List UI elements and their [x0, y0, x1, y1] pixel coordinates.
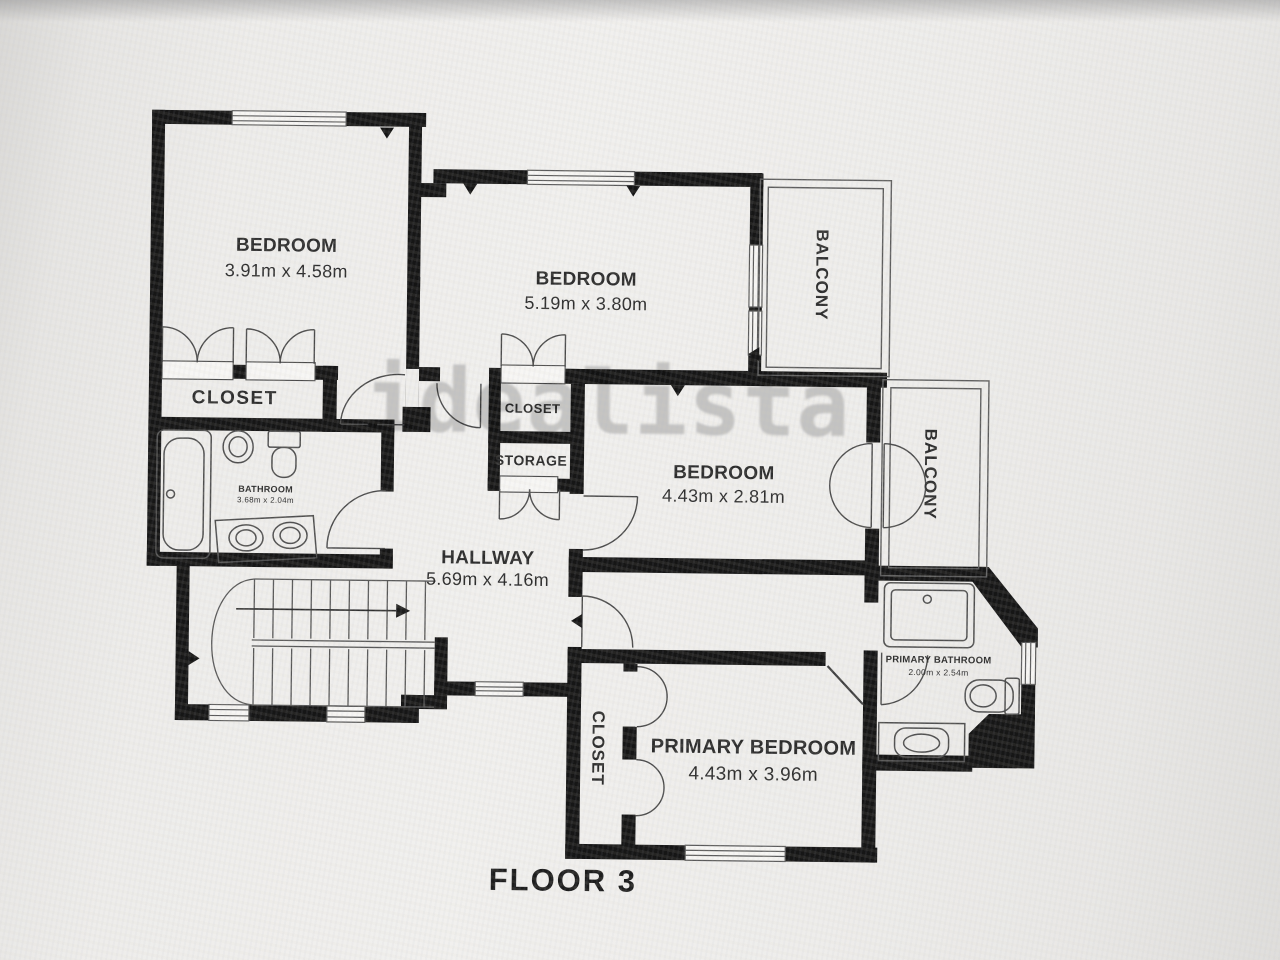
stairs-direction-arrow: [236, 602, 410, 618]
bathtub: [156, 430, 212, 559]
room-label-bedroom-middle-right: BEDROOM: [673, 462, 775, 485]
toilet: [223, 431, 253, 463]
room-dims-bedroom-top-middle: 5.19m x 3.80m: [524, 293, 647, 316]
staircase: [211, 578, 436, 707]
floor-plan: BEDROOM 3.91m x 4.58m BEDROOM 5.19m x 3.…: [0, 0, 1280, 960]
primary-toilet: [965, 678, 1019, 715]
room-dims-primary-bedroom: 4.43m x 3.96m: [688, 763, 818, 787]
toilet-cistern: [268, 431, 301, 477]
room-label-bedroom-top-left: BEDROOM: [236, 235, 338, 258]
room-label-closet-primary: CLOSET: [587, 711, 608, 786]
room-label-primary-bathroom: PRIMARY BATHROOM: [886, 654, 992, 666]
room-dims-bedroom-top-left: 3.91m x 4.58m: [225, 260, 348, 283]
room-label-primary-bedroom: PRIMARY BEDROOM: [651, 735, 857, 761]
floorplan-drawing: [0, 0, 1280, 960]
room-label-balcony-top: BALCONY: [811, 229, 832, 320]
door-openings: [404, 369, 881, 529]
room-label-hallway: HALLWAY: [441, 547, 535, 570]
room-dims-primary-bathroom: 2.00m x 2.54m: [908, 667, 968, 678]
floor-title: FLOOR 3: [488, 862, 637, 900]
room-label-closet-hall: CLOSET: [505, 401, 561, 417]
room-label-closet-bedroom: CLOSET: [192, 387, 278, 410]
primary-entry-door-leaf: [827, 666, 863, 704]
room-label-bedroom-top-middle: BEDROOM: [535, 268, 637, 291]
room-dims-bedroom-middle-right: 4.43m x 2.81m: [662, 485, 785, 508]
room-label-balcony-right: BALCONY: [919, 429, 940, 520]
shower: [884, 583, 975, 648]
room-label-storage: STORAGE: [495, 452, 568, 469]
room-label-bathroom: BATHROOM: [238, 484, 293, 495]
room-dims-bathroom: 3.68m x 2.04m: [237, 495, 294, 505]
room-dims-hallway: 5.69m x 4.16m: [426, 569, 549, 592]
floor-plan-photo: BEDROOM 3.91m x 4.58m BEDROOM 5.19m x 3.…: [0, 0, 1280, 960]
